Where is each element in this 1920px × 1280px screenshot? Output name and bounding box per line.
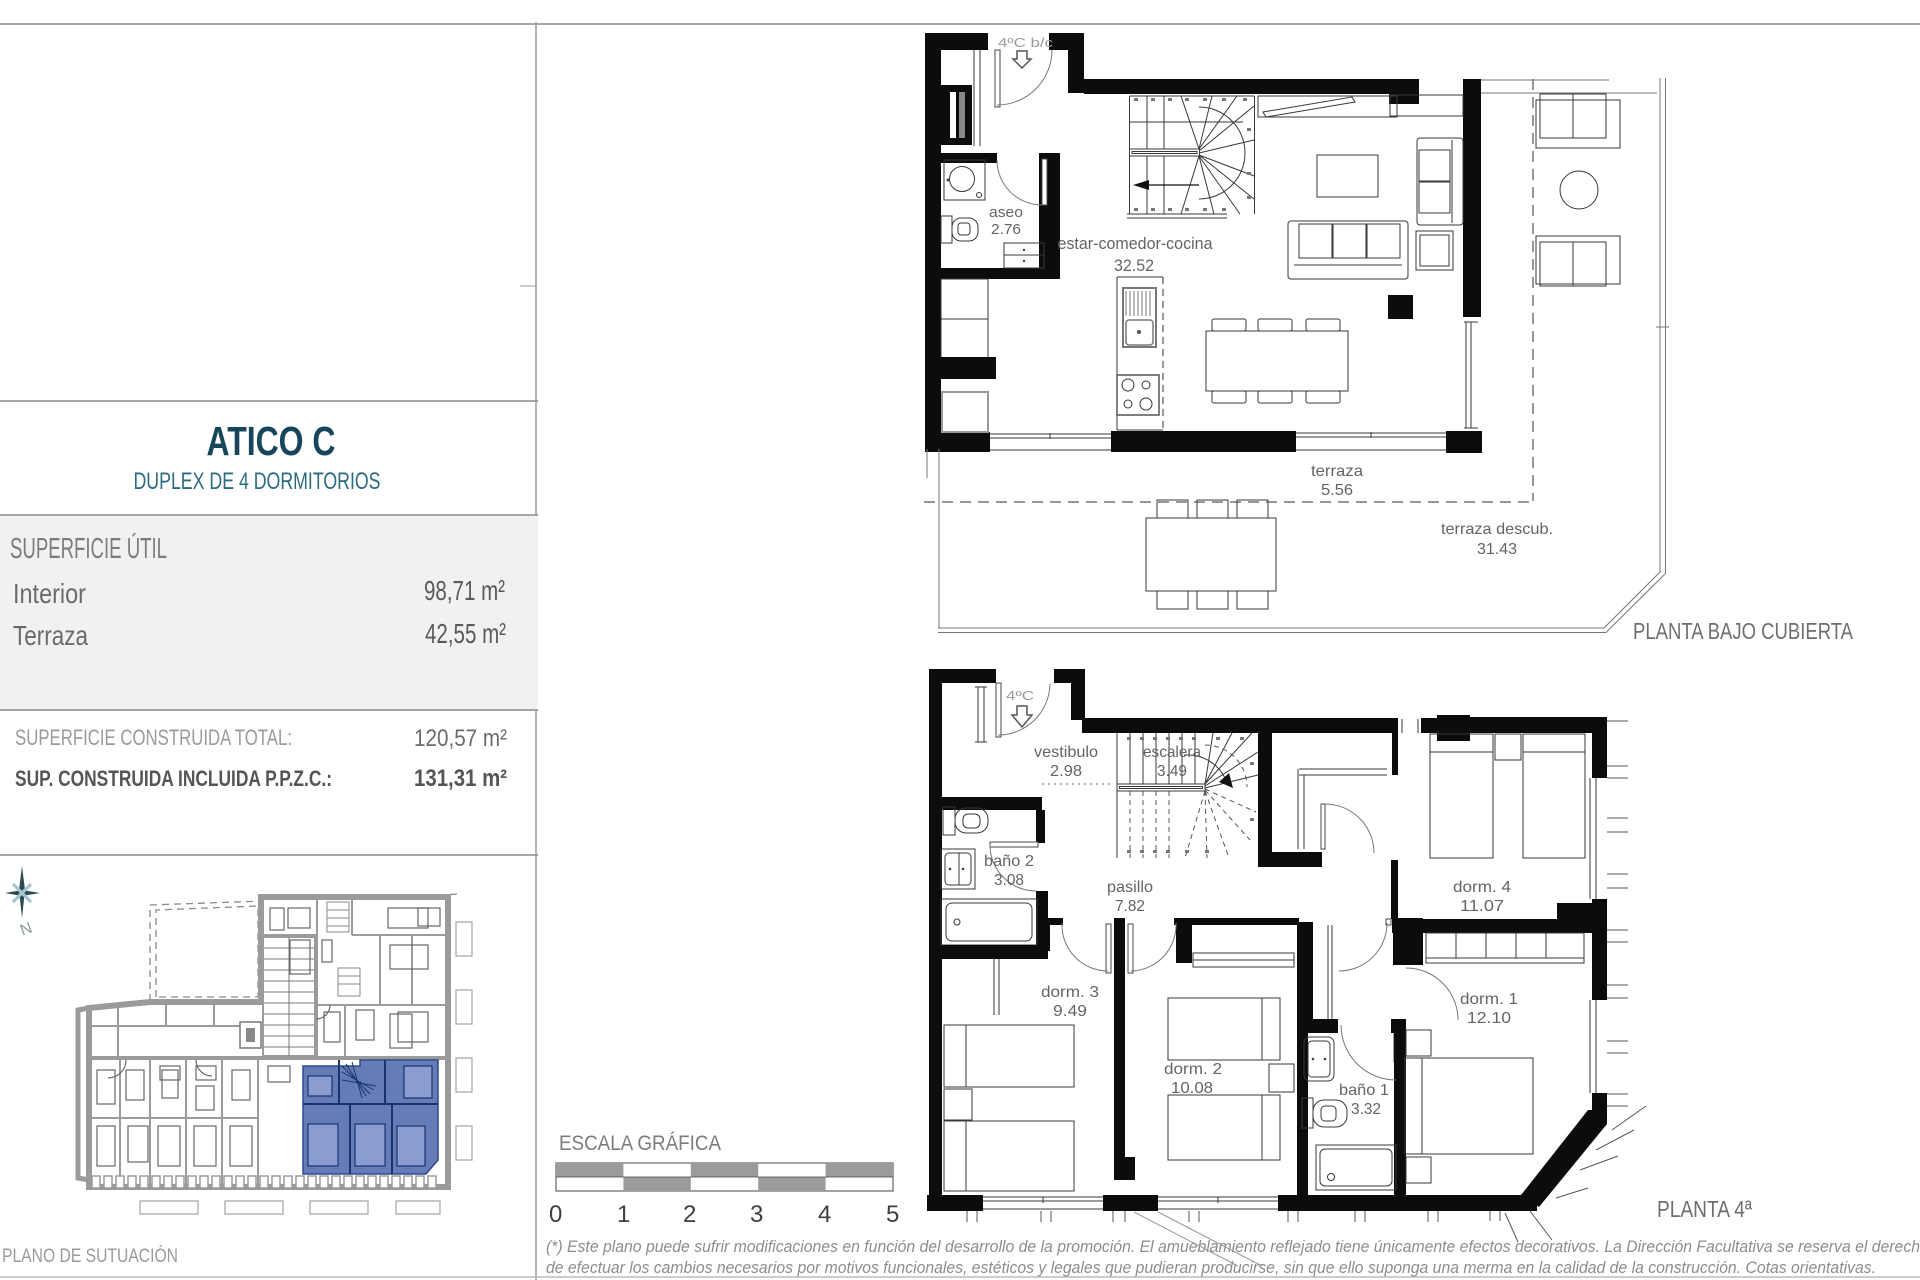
svg-text:dorm. 2: dorm. 2 bbox=[1164, 1061, 1222, 1078]
svg-text:terraza: terraza bbox=[1311, 463, 1363, 480]
svg-text:PLANTA 4ª: PLANTA 4ª bbox=[1657, 1196, 1752, 1222]
svg-text:120,57 m²: 120,57 m² bbox=[414, 725, 507, 752]
svg-text:SUP. CONSTRUIDA INCLUIDA P.P.Z: SUP. CONSTRUIDA INCLUIDA P.P.Z.C.: bbox=[15, 766, 332, 791]
svg-text:2.76: 2.76 bbox=[991, 221, 1021, 238]
svg-text:2: 2 bbox=[683, 1201, 696, 1228]
svg-text:Interior: Interior bbox=[13, 578, 86, 609]
svg-text:terraza descub.: terraza descub. bbox=[1441, 521, 1553, 538]
svg-text:131,31 m²: 131,31 m² bbox=[414, 765, 507, 792]
svg-text:11.07: 11.07 bbox=[1460, 898, 1504, 915]
svg-text:5: 5 bbox=[886, 1201, 899, 1228]
svg-text:9.49: 9.49 bbox=[1053, 1003, 1087, 1020]
svg-text:de efectuar los cambios necesa: de efectuar los cambios necesarios por m… bbox=[546, 1258, 1876, 1277]
svg-text:Terraza: Terraza bbox=[13, 620, 88, 651]
svg-text:4ºC b/c: 4ºC b/c bbox=[998, 35, 1054, 50]
svg-text:ATICO C: ATICO C bbox=[207, 418, 336, 464]
svg-text:5.56: 5.56 bbox=[1321, 482, 1353, 499]
svg-text:DUPLEX DE 4 DORMITORIOS: DUPLEX DE 4 DORMITORIOS bbox=[134, 468, 381, 495]
svg-text:escalera: escalera bbox=[1143, 744, 1201, 761]
svg-text:98,71 m²: 98,71 m² bbox=[424, 575, 505, 606]
svg-text:3.49: 3.49 bbox=[1157, 763, 1187, 780]
svg-text:baño 2: baño 2 bbox=[984, 853, 1034, 870]
svg-text:7.82: 7.82 bbox=[1115, 898, 1145, 915]
svg-text:10.08: 10.08 bbox=[1171, 1080, 1213, 1097]
svg-text:dorm. 3: dorm. 3 bbox=[1041, 984, 1099, 1001]
svg-text:SUPERFICIE ÚTIL: SUPERFICIE ÚTIL bbox=[10, 532, 167, 565]
svg-text:2.98: 2.98 bbox=[1050, 763, 1082, 780]
svg-text:vestibulo: vestibulo bbox=[1034, 744, 1098, 761]
svg-text:0: 0 bbox=[549, 1201, 562, 1228]
svg-text:PLANO DE SUTUACIÓN: PLANO DE SUTUACIÓN bbox=[2, 1245, 178, 1267]
svg-text:32.52: 32.52 bbox=[1114, 256, 1154, 275]
svg-text:SUPERFICIE CONSTRUIDA TOTAL:: SUPERFICIE CONSTRUIDA TOTAL: bbox=[15, 725, 292, 750]
svg-text:12.10: 12.10 bbox=[1467, 1010, 1511, 1027]
svg-text:ESCALA GRÁFICA: ESCALA GRÁFICA bbox=[559, 1132, 721, 1155]
svg-text:1: 1 bbox=[617, 1201, 630, 1228]
svg-text:4: 4 bbox=[818, 1201, 831, 1228]
svg-text:aseo: aseo bbox=[989, 204, 1023, 221]
svg-text:42,55 m²: 42,55 m² bbox=[425, 618, 506, 649]
svg-text:PLANTA BAJO CUBIERTA: PLANTA BAJO CUBIERTA bbox=[1633, 618, 1854, 644]
svg-text:estar-comedor-cocina: estar-comedor-cocina bbox=[1058, 234, 1214, 253]
svg-text:dorm. 1: dorm. 1 bbox=[1460, 991, 1518, 1008]
svg-text:31.43: 31.43 bbox=[1477, 541, 1517, 558]
svg-text:baño 1: baño 1 bbox=[1339, 1082, 1389, 1099]
svg-text:3.08: 3.08 bbox=[994, 872, 1024, 889]
svg-text:4ºC: 4ºC bbox=[1006, 688, 1034, 703]
svg-text:(*) Este plano puede sufrir mo: (*) Este plano puede sufrir modificacion… bbox=[546, 1237, 1920, 1256]
svg-text:dorm. 4: dorm. 4 bbox=[1453, 879, 1511, 896]
svg-text:3: 3 bbox=[750, 1201, 763, 1228]
svg-text:3.32: 3.32 bbox=[1351, 1101, 1381, 1118]
svg-text:pasillo: pasillo bbox=[1107, 879, 1153, 896]
